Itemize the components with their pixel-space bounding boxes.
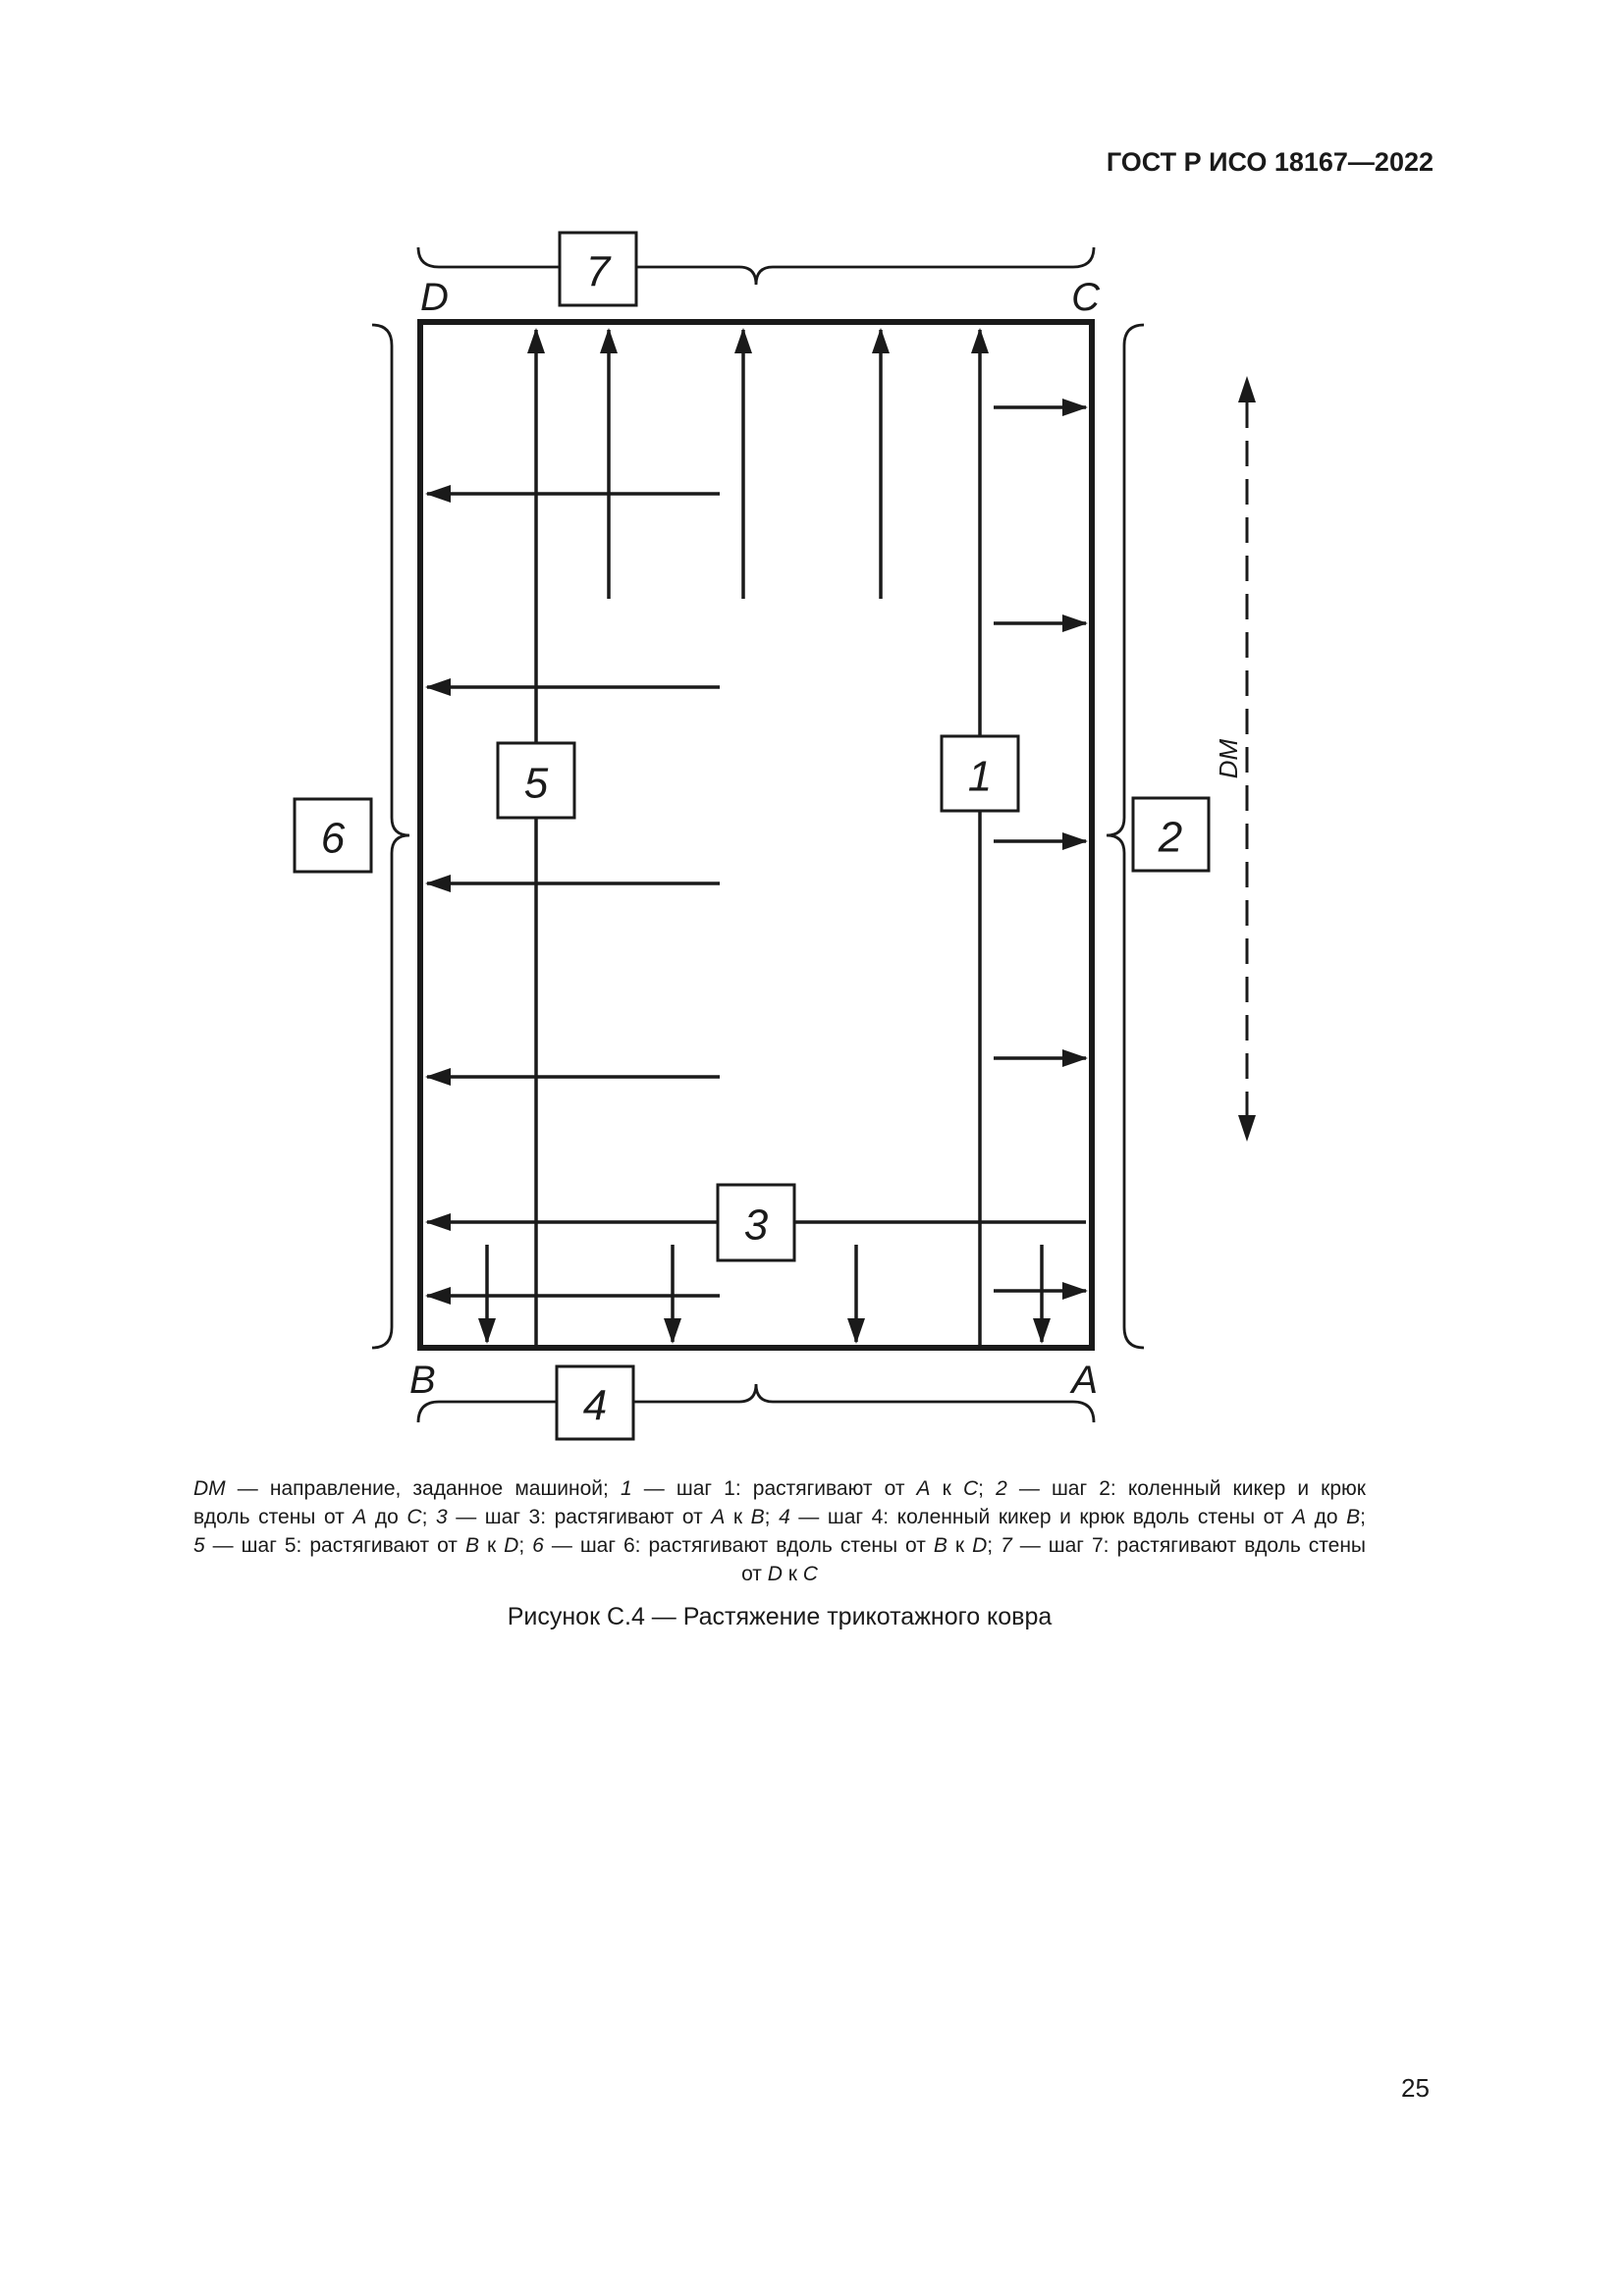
step-3-box: 3 <box>718 1185 794 1260</box>
step-7-box: 7 <box>560 233 636 305</box>
figure-caption: Рисунок С.4 — Растяжение трикотажного ко… <box>193 1603 1366 1631</box>
machine-direction-down-arrowhead <box>1238 1115 1256 1142</box>
corner-label-d: D <box>420 276 449 319</box>
step-3-box-label: 3 <box>744 1201 769 1250</box>
step-2-box: 2 <box>1133 798 1209 871</box>
step-7-box-label: 7 <box>586 248 612 296</box>
step-1-box-label: 1 <box>968 753 992 801</box>
corner-label-a: A <box>1069 1359 1098 1402</box>
step-2-box-label: 2 <box>1158 814 1182 862</box>
machine-direction-up-arrowhead <box>1238 376 1256 402</box>
legend-line-2: вдоль стены от A до C; 3 — шаг 3: растяг… <box>193 1503 1366 1531</box>
step-6-box: 6 <box>295 799 371 872</box>
step-1-box: 1 <box>942 736 1018 811</box>
left-brace <box>372 325 409 1348</box>
legend-line-1: DM — направление, заданное машиной; 1 — … <box>193 1474 1366 1503</box>
step-5-box-label: 5 <box>524 760 549 808</box>
legend-line-4: от D к C <box>193 1560 1366 1588</box>
machine-direction-label: DM <box>1214 738 1243 778</box>
figure-legend: DM — направление, заданное машиной; 1 — … <box>193 1474 1366 1588</box>
step-5-box: 5 <box>498 743 574 818</box>
page-number: 25 <box>1401 2073 1430 2104</box>
corner-label-b: B <box>409 1359 436 1402</box>
corner-label-c: C <box>1071 276 1101 319</box>
step-4-box-label: 4 <box>583 1382 607 1430</box>
step-6-box-label: 6 <box>321 815 346 863</box>
bottom-brace <box>418 1384 1094 1422</box>
top-brace <box>418 247 1094 285</box>
step-4-box: 4 <box>557 1366 633 1439</box>
figure-c4-diagram: DM 7 6 <box>0 0 1624 1472</box>
legend-line-3: 5 — шаг 5: растягивают от B к D; 6 — шаг… <box>193 1531 1366 1560</box>
machine-direction-arrow: DM <box>1214 376 1256 1142</box>
